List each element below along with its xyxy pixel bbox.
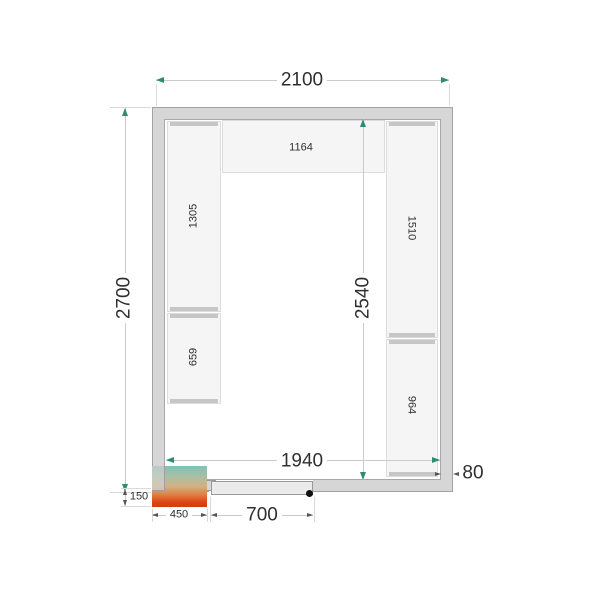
shelf-left-lower-label: 659 bbox=[189, 348, 200, 366]
shelf-edge-strip bbox=[170, 314, 218, 318]
arrow-right-icon bbox=[435, 472, 441, 476]
shelf-left-upper-label: 1305 bbox=[189, 204, 200, 228]
arrow-right-icon bbox=[441, 77, 449, 83]
door-leaf bbox=[211, 481, 313, 495]
arrow-left-icon bbox=[156, 77, 164, 83]
dim-outer-height-label: 2700 bbox=[114, 273, 135, 323]
door-handle-dot bbox=[306, 490, 313, 497]
dim-extension-line bbox=[156, 84, 157, 106]
shelf-edge-strip bbox=[170, 122, 218, 126]
shelf-right-lower-label: 964 bbox=[406, 396, 417, 414]
cooling-unit-wall-overlay bbox=[152, 466, 165, 491]
arrow-up-icon bbox=[122, 108, 128, 116]
shelf-edge-strip bbox=[389, 333, 435, 337]
arrow-down-icon bbox=[360, 472, 366, 480]
dim-inner-width-label: 1940 bbox=[277, 451, 327, 472]
arrow-left-icon bbox=[152, 513, 158, 517]
arrow-left-icon bbox=[453, 472, 459, 476]
dim-extension-line bbox=[110, 107, 151, 108]
dim-extension-line bbox=[210, 497, 211, 522]
dim-extension-line bbox=[449, 84, 450, 106]
arrow-left-icon bbox=[166, 457, 174, 463]
shelf-right-upper-label: 1510 bbox=[406, 216, 417, 240]
shelf-edge-strip bbox=[170, 307, 218, 311]
arrow-up-icon bbox=[360, 119, 366, 127]
dim-inner-height-label: 2540 bbox=[353, 273, 374, 323]
dim-unit-width-label: 450 bbox=[166, 509, 192, 522]
arrow-down-icon bbox=[123, 500, 127, 506]
dim-extension-line bbox=[314, 497, 315, 522]
shelf-top-label: 1164 bbox=[289, 143, 313, 154]
dim-extension-line bbox=[121, 506, 151, 507]
arrow-left-icon bbox=[211, 513, 217, 517]
shelf-edge-strip bbox=[389, 340, 435, 344]
dim-door-opening-label: 700 bbox=[242, 505, 282, 526]
shelf-edge-strip bbox=[389, 472, 435, 476]
shelf-edge-strip bbox=[170, 399, 218, 403]
dim-unit-protrusion-label: 150 bbox=[130, 492, 148, 503]
arrow-up-icon bbox=[123, 489, 127, 495]
arrow-right-icon bbox=[307, 513, 313, 517]
dim-wall-thickness-label: 80 bbox=[462, 464, 483, 483]
floor-plan-canvas: 1164 1305 659 1510 964 2100 2700 2540 19… bbox=[0, 0, 600, 600]
arrow-right-icon bbox=[432, 457, 440, 463]
dim-outer-width-label: 2100 bbox=[277, 70, 327, 91]
arrow-right-icon bbox=[201, 513, 207, 517]
dim-extension-line bbox=[207, 509, 208, 522]
shelf-edge-strip bbox=[389, 122, 435, 126]
